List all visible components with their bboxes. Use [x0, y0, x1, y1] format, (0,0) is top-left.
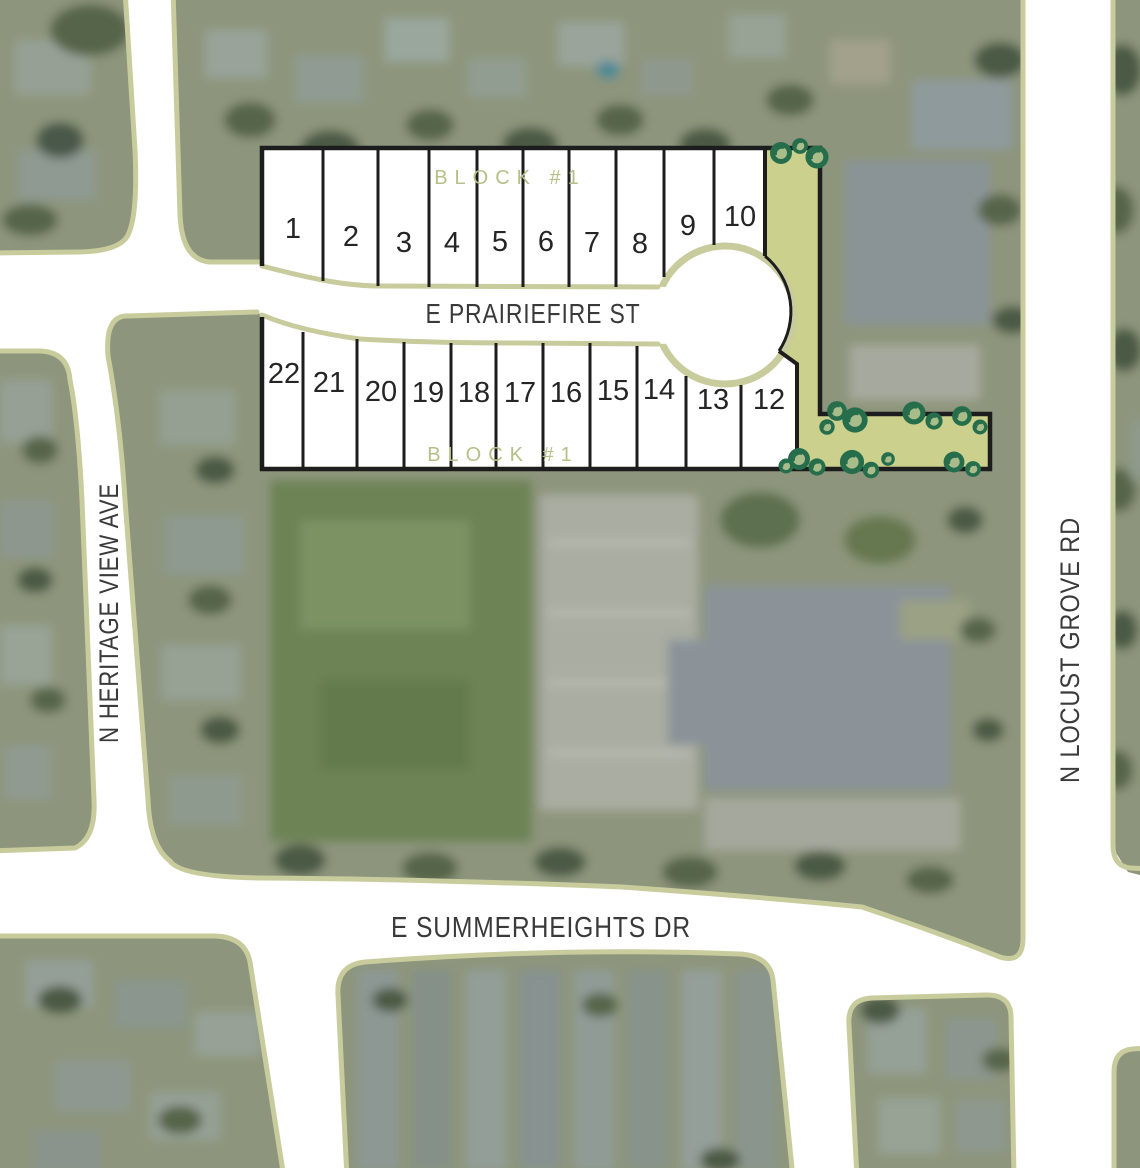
tree-icon [965, 461, 981, 477]
plat-map: BLOCK #1 BLOCK #1 1 2 3 4 5 6 7 8 9 10 2… [0, 0, 1140, 1168]
lot-number: 12 [753, 384, 785, 416]
lot-number: 9 [680, 210, 696, 242]
tree-icon [973, 420, 988, 435]
tree-icon [944, 452, 965, 473]
tree-icon [770, 142, 792, 164]
lot-number: 18 [458, 377, 490, 409]
lot-number: 5 [492, 226, 508, 258]
lot-number: 19 [412, 377, 444, 409]
map-canvas: BLOCK #1 BLOCK #1 1 2 3 4 5 6 7 8 9 10 2… [0, 0, 1140, 1168]
lot-number: 6 [538, 226, 554, 258]
block-label-top: BLOCK #1 [434, 167, 586, 189]
street-label-summerheights: E SUMMERHEIGHTS DR [391, 912, 691, 944]
lot-number: 2 [343, 221, 359, 253]
lot-number: 7 [584, 227, 600, 259]
lot-number: 14 [643, 374, 675, 406]
lot-number: 8 [632, 228, 648, 260]
lot-number: 4 [444, 227, 460, 259]
tree-icon [808, 458, 825, 475]
lot-number: 17 [504, 377, 536, 409]
street-label-heritage-view: N HERITAGE VIEW AVE [94, 483, 124, 743]
tree-icon [805, 145, 828, 168]
block-label-bottom: BLOCK #1 [427, 444, 579, 466]
tree-icon [819, 419, 834, 434]
lot-number: 20 [365, 376, 397, 408]
tree-icon [952, 406, 972, 426]
lot-number: 15 [597, 375, 629, 407]
tree-icon [840, 450, 864, 474]
tree-icon [881, 452, 895, 466]
lot-number: 1 [285, 213, 301, 245]
lot-number: 22 [268, 358, 300, 390]
tree-icon [779, 459, 794, 474]
tree-icon [863, 462, 880, 479]
tree-icon [902, 401, 925, 424]
lot-number: 3 [396, 227, 412, 259]
street-label-prairiefire: E PRAIRIEFIRE ST [426, 298, 641, 329]
tree-icon [925, 412, 942, 429]
tree-icon [842, 407, 867, 432]
lot-number: 16 [550, 377, 582, 409]
street-label-locust-grove: N LOCUST GROVE RD [1055, 517, 1085, 783]
tree-icon [792, 138, 808, 154]
lot-number: 13 [697, 384, 729, 416]
lot-number: 10 [724, 201, 756, 233]
lot-number: 21 [313, 367, 345, 399]
